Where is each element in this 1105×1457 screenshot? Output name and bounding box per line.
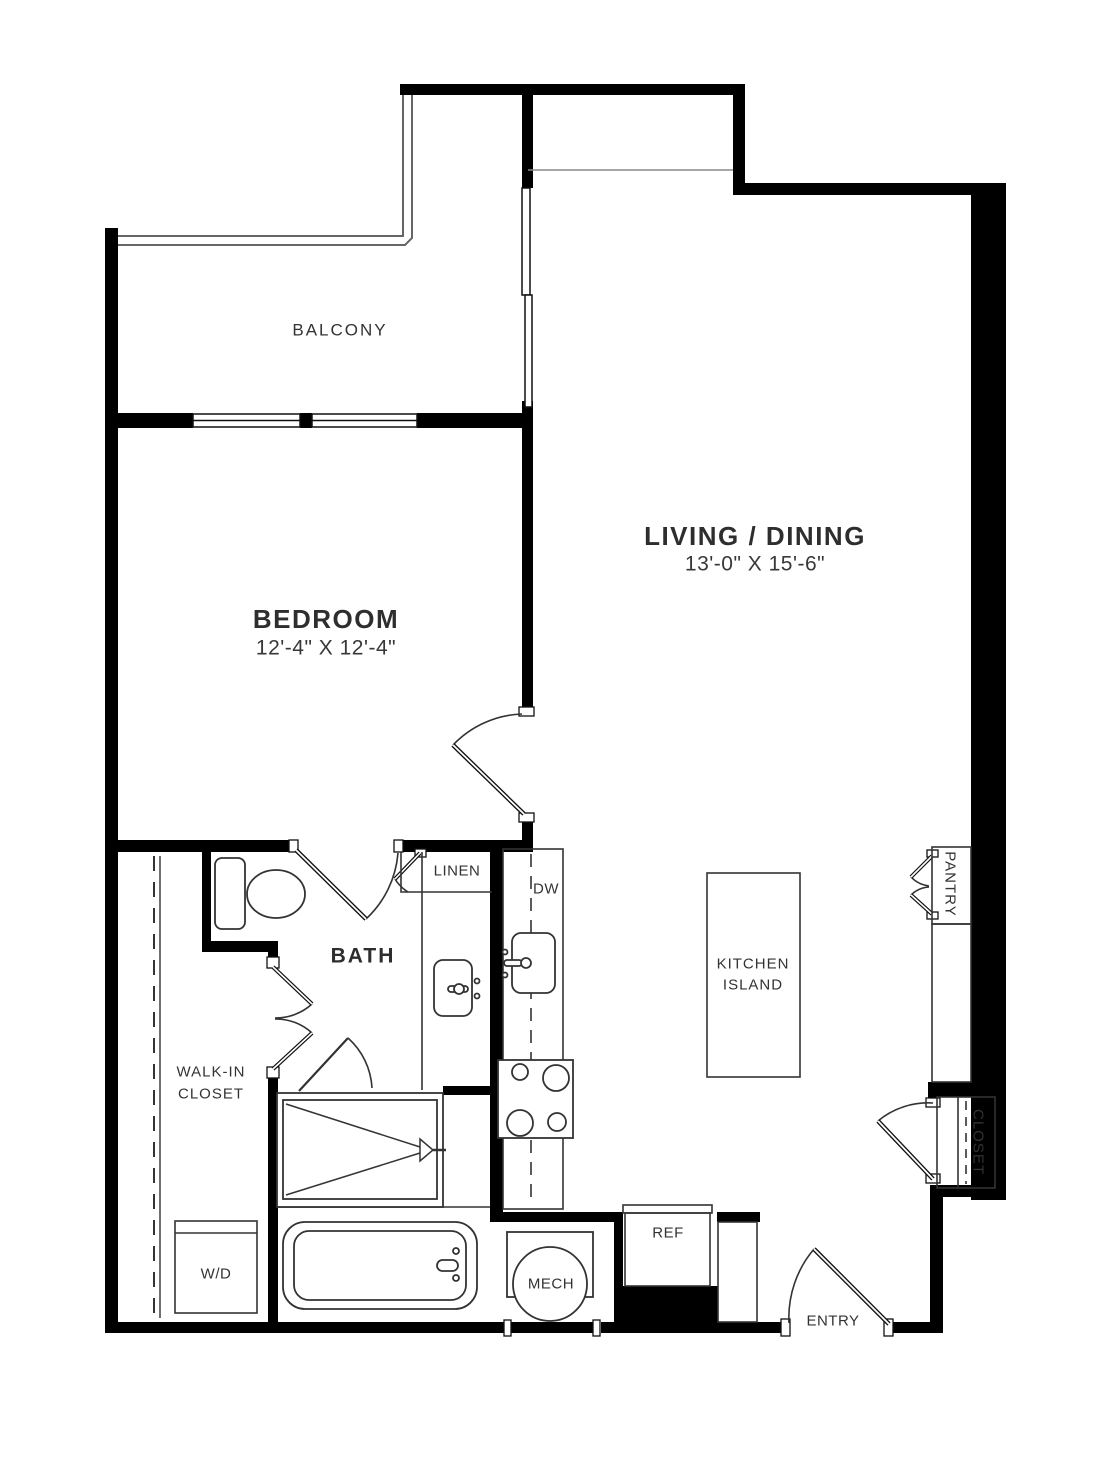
entry-label: ENTRY xyxy=(806,1314,859,1329)
entry-closet-door xyxy=(878,1103,933,1179)
stove xyxy=(498,1060,573,1138)
pantry-doors xyxy=(911,856,932,914)
kitchen-island-label-line1: KITCHEN xyxy=(717,957,790,972)
bath-sink xyxy=(434,960,480,1016)
walk-in-closet-label-line2: CLOSET xyxy=(178,1087,244,1102)
bath-label: BATH xyxy=(331,946,396,967)
bedroom-label: BEDROOM xyxy=(253,606,399,632)
kitchen-counter xyxy=(503,849,563,1209)
refrigerator-label: REF xyxy=(652,1226,684,1241)
entry-cabinet xyxy=(718,1222,757,1322)
walls xyxy=(105,84,1006,1333)
shower-door xyxy=(299,1038,372,1091)
pantry-label: PANTRY xyxy=(943,851,958,916)
walk-in-closet-doors xyxy=(273,967,312,1069)
balcony-label: BALCONY xyxy=(292,322,387,339)
washer-dryer-label: W/D xyxy=(201,1267,232,1282)
bedroom-door xyxy=(453,714,524,814)
living-dining-dimensions: 13'-0" X 15'-6" xyxy=(685,554,825,575)
refrigerator xyxy=(623,1205,712,1213)
shower xyxy=(277,1093,446,1207)
wall-niche xyxy=(932,924,971,1082)
walk-in-closet-rod-shelf xyxy=(154,856,160,1318)
living-dining-label: LIVING / DINING xyxy=(644,523,866,549)
linen-door xyxy=(395,853,420,892)
balcony-sliding-door xyxy=(522,188,532,407)
bedroom-dimensions: 12'-4" X 12'-4" xyxy=(256,638,396,659)
kitchen-island xyxy=(707,873,800,1077)
floor-plan: BALCONY BEDROOM 12'-4" X 12'-4" LIVING /… xyxy=(0,0,1105,1457)
kitchen-island-label-line2: ISLAND xyxy=(723,978,783,993)
kitchen-sink xyxy=(503,933,556,993)
floor-plan-drawing xyxy=(0,0,1105,1457)
bathtub xyxy=(283,1222,477,1309)
mechanical-label: MECH xyxy=(528,1277,574,1292)
bath-door xyxy=(296,850,398,919)
toilet xyxy=(215,858,305,929)
linen-label: LINEN xyxy=(434,864,481,879)
walk-in-closet-label-line1: WALK-IN xyxy=(177,1065,246,1080)
balcony-railing xyxy=(118,95,412,245)
entry-closet-label: CLOSET xyxy=(971,1109,986,1175)
dishwasher-label: DW xyxy=(533,882,559,897)
